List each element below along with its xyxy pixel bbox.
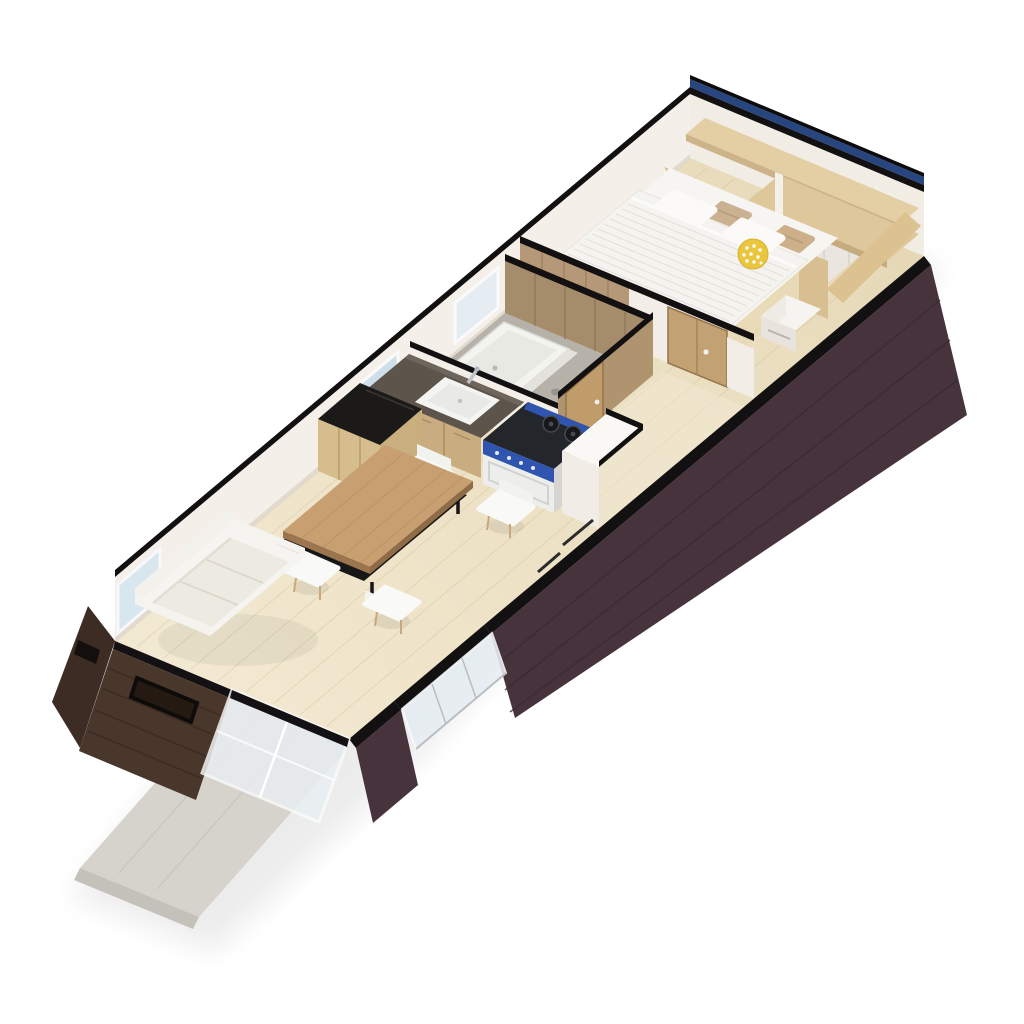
- floorplan-svg: [0, 0, 1024, 1024]
- burner-cap: [549, 422, 554, 427]
- burner-cap: [571, 432, 576, 437]
- sink-drain: [458, 399, 462, 403]
- yellow-polkadot-pillow: [738, 239, 768, 269]
- floorplan-render: [0, 0, 1024, 1024]
- bathroom-door-handle: [595, 400, 600, 405]
- faucet-spout: [474, 366, 479, 371]
- bedroom-door-handle: [703, 349, 708, 354]
- bathtub-drain: [492, 365, 497, 370]
